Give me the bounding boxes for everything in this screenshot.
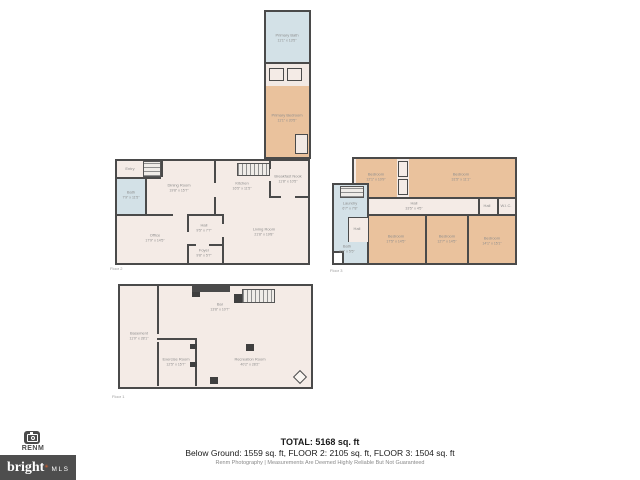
room-label-wic: W.I.C. [501,203,512,209]
wall-segment [269,161,271,169]
wall-segment [157,338,197,340]
wall-segment [187,214,223,216]
wall-segment [209,244,224,246]
total-area-text: TOTAL: 5168 sq. ft [0,437,640,447]
room-label-recreation: Recreation Room 40'2" x 28'2" [234,357,265,368]
wall-segment [269,181,271,196]
wall-segment [157,342,159,386]
room-label-kitchen: Kitchen 16'5" x 11'5" [233,181,252,192]
bright-mls-logo: bright✳ MLS [0,455,76,480]
floorplan-floor1: Basement 11'0" x 28'1" Bar 13'8" x 10'7"… [118,284,313,389]
wall-segment [354,197,515,199]
support-column [210,377,218,384]
room-label-nook: Breakfast Nook 11'8" x 10'5" [274,174,301,185]
bright-logo-text: bright [7,461,44,475]
room-label-hall-floor3: Hall 33'5" x 4'5" [405,201,422,212]
wall-segment [214,161,216,183]
closet [398,179,408,195]
wall-segment [145,214,173,216]
wall-segment [222,214,224,224]
wall-segment [269,196,281,198]
disclaimer-text: Renm Photography | Measurements Are Deem… [0,460,640,466]
room-label-bedroom-b3: Bedroom 14'1" x 15'1" [482,236,501,247]
wall-segment [497,199,499,214]
photographer-logo-text: RENM [20,445,46,452]
floorplan-wing: Primary Bath 11'1" x 13'5" Primary Bedro… [264,10,311,159]
stairs-floor3 [340,186,364,198]
support-column [192,292,200,297]
room-label-bath-floor2: Bath 7'9" x 11'5" [123,190,140,201]
wall-segment [478,199,480,214]
bright-logo-mark-icon: ✳ [44,465,48,470]
wall-segment [117,177,161,179]
stairs-floor1 [242,289,275,303]
room-label-hall-floor2: Hall 9'5" x 7'7" [196,223,211,234]
support-column [246,344,254,351]
caption-floor3: Floor 3 [330,268,342,273]
stair-post [234,294,242,303]
camera-lens [31,436,35,440]
wall-segment [117,214,147,216]
room-label-primary-bath: Primary Bath 11'1" x 13'5" [275,33,298,44]
closet [295,134,308,154]
stairs-entry [143,161,161,177]
wall-segment [157,286,159,334]
room-label-laundry: Laundry 6'7" x 7'8" [342,201,357,212]
wall-segment [145,177,147,214]
room-label-dining: Dining Room 19'8" x 15'7" [167,183,190,194]
room-label-bar: Bar 13'8" x 10'7" [210,302,229,313]
room-label-basement: Basement 11'0" x 28'1" [130,331,149,342]
caption-floor1: Floor 1 [112,394,124,399]
wall-segment [161,161,163,177]
room-label-annex-hall: Hall [354,226,361,232]
wall-segment [187,244,196,246]
caption-floor2: Floor 2 [110,266,122,271]
corner-feature [293,370,307,384]
stairs-kitchen [237,163,270,176]
room-label-living: Living Room 21'8" x 19'8" [253,227,275,238]
wall-segment [187,214,189,232]
floorplan-floor3-annex: Laundry 6'7" x 7'8" Hall Bath 8'8" x 5'5… [332,183,369,265]
door-frame [190,362,197,367]
floor-breakdown-text: Below Ground: 1559 sq. ft, FLOOR 2: 2105… [0,448,640,458]
closet [269,68,284,81]
room-label-foyer: Foyer 9'8" x 5'7" [196,248,211,259]
closet [398,161,408,177]
room-label-bedroom-b2: Bedroom 12'7" x 14'5" [437,234,456,245]
floorplan-floor3: Bedroom 12'1" x 10'9" Bedroom 31'5" x 11… [352,157,517,265]
floorplan-floor2: Entry Bath 7'9" x 11'5" Dining Room 19'8… [115,159,310,265]
room-label-primary-bedroom: Primary Bedroom 11'1" x 20'5" [271,113,302,124]
room-label-bedroom-b1: Bedroom 17'5" x 14'5" [386,234,405,245]
room-label-bedroom-tr: Bedroom 31'5" x 11'1" [452,172,471,183]
room-label-entry: Entry [125,166,134,172]
room-label-hall2: Hall [484,203,491,209]
room-label-bedroom-tl: Bedroom 12'1" x 10'9" [366,172,385,183]
wall-segment [222,237,224,263]
wall-segment [187,245,189,263]
camera-body [27,434,38,442]
room-label-bath-floor3: Bath 8'8" x 5'5" [339,244,354,255]
room-label-exercise: Exercise Room 12'5" x 15'7" [162,357,189,368]
wall-segment [295,196,308,198]
camera-icon [24,431,40,444]
wall-segment [214,197,216,214]
mls-logo-suffix: MLS [52,466,70,473]
closet [287,68,302,81]
door-frame [190,344,197,349]
floorplan-page: Entry Bath 7'9" x 11'5" Dining Room 19'8… [0,0,640,480]
room-label-office: Office 17'9" x 14'5" [145,233,164,244]
